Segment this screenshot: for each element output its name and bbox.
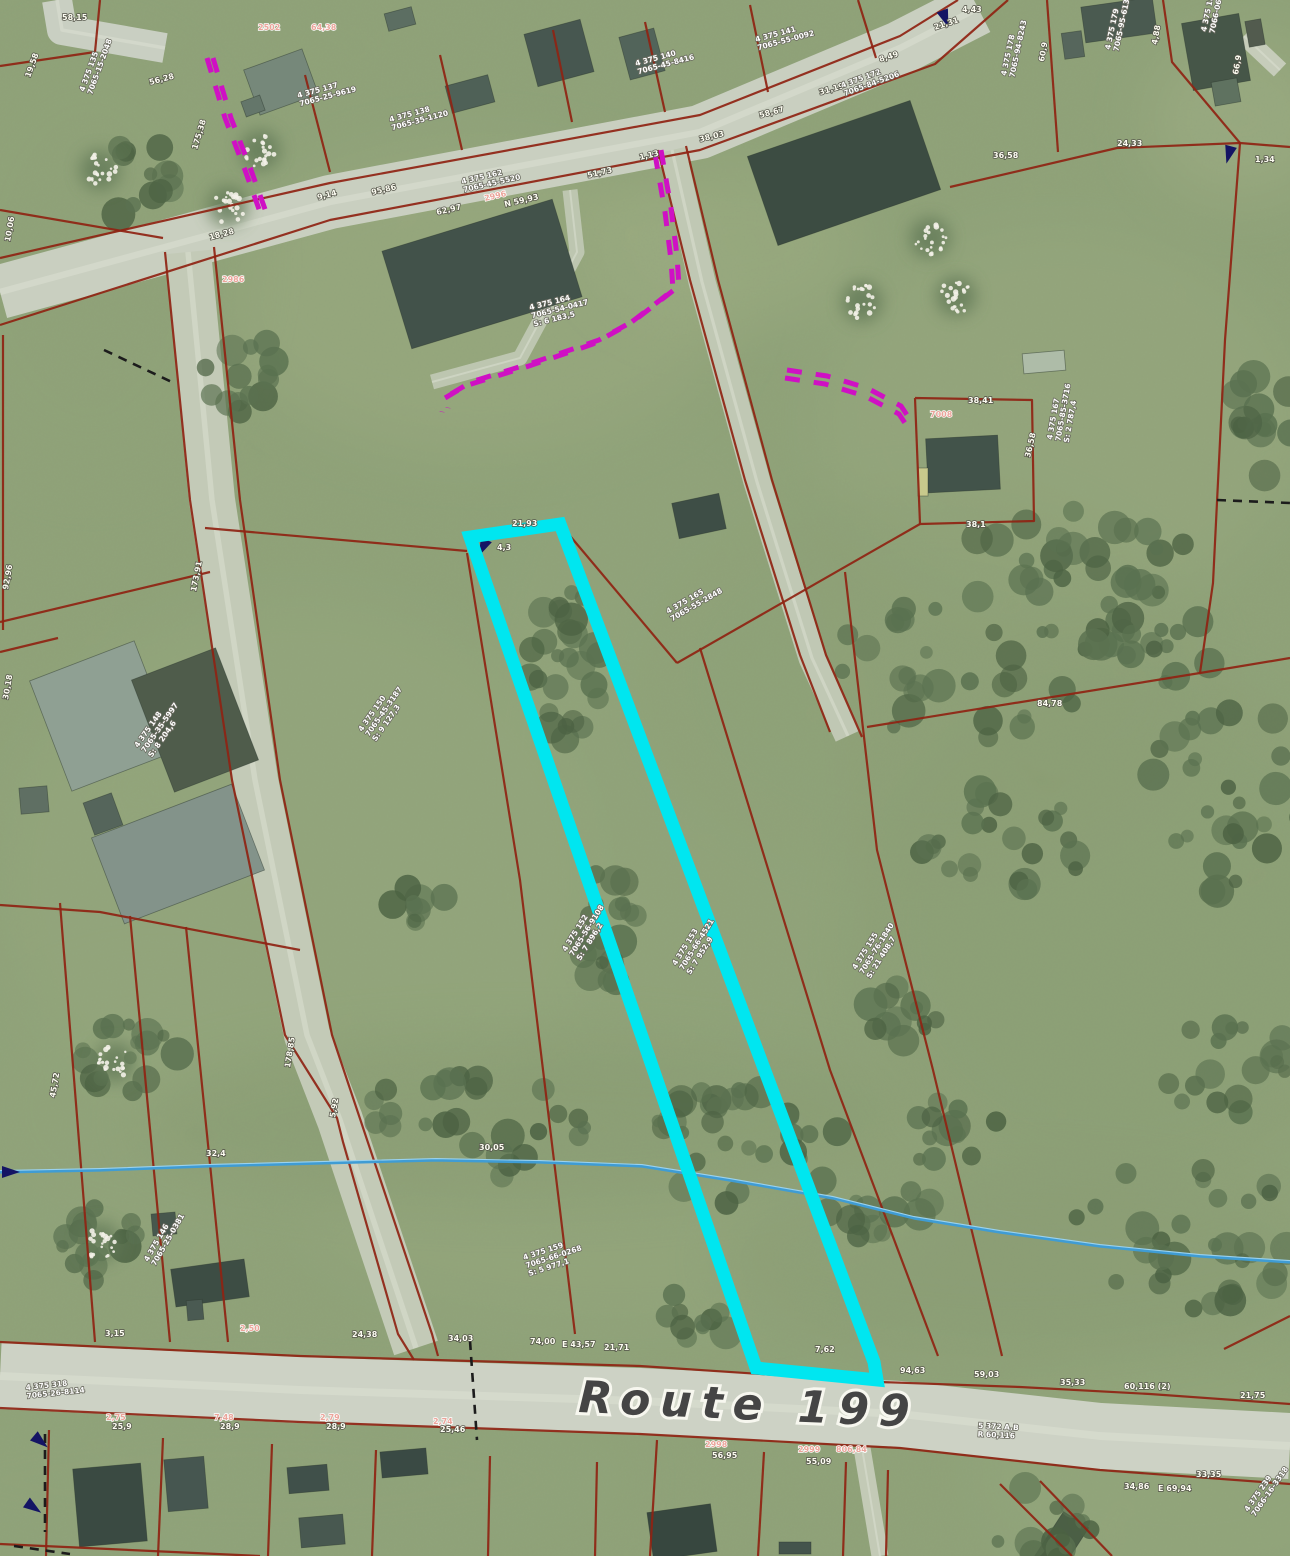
blossom-dot	[853, 285, 857, 289]
tree	[1016, 879, 1037, 900]
lot-label-cluster: 5 372 A,BR 60,116	[977, 1421, 1019, 1441]
measurement-label: 34,86	[1124, 1482, 1150, 1491]
tree	[407, 914, 421, 928]
blossom-dot	[241, 212, 245, 216]
blossom-dot	[235, 195, 238, 198]
blossom-dot	[88, 1236, 92, 1240]
blossom-dot	[97, 164, 100, 167]
blossom-dot	[260, 140, 264, 144]
blossom-dot	[939, 247, 943, 251]
blossom-dot	[923, 234, 927, 238]
tree	[443, 1108, 471, 1136]
tree	[240, 386, 259, 405]
measurement-label: 38,41	[968, 396, 994, 405]
tree	[1249, 460, 1281, 492]
blossom-dot	[917, 240, 920, 243]
tree	[1078, 629, 1110, 661]
tree	[854, 987, 888, 1021]
measurement-label: 94,63	[900, 1366, 925, 1375]
tree	[123, 1019, 135, 1031]
tree	[1010, 714, 1035, 739]
building	[1211, 78, 1241, 106]
blossom-dot	[955, 308, 959, 312]
tree	[992, 672, 1017, 697]
blossom-dot	[951, 296, 957, 302]
tree	[1214, 1285, 1246, 1317]
building	[164, 1456, 208, 1511]
map-viewport[interactable]: 58,1519,5856,2818,289,1495,8662,97N 59,9…	[0, 0, 1290, 1556]
blossom-dot	[99, 1058, 102, 1061]
tree	[1081, 1520, 1100, 1539]
measurement-label: 55,09	[806, 1457, 832, 1466]
measurement-label: 74,00	[530, 1337, 556, 1346]
blossom-dot	[252, 139, 256, 143]
measurement-label: 58,15	[62, 13, 88, 22]
tree	[532, 1078, 555, 1101]
blossom-dot	[253, 164, 256, 167]
tree	[835, 664, 850, 679]
tree	[530, 1123, 547, 1140]
tree	[988, 792, 1012, 816]
blossom-dot	[940, 290, 944, 294]
tree	[146, 134, 173, 161]
measurement-label: 4,43	[962, 5, 982, 14]
blossom-dot	[859, 287, 863, 291]
tree	[1111, 567, 1142, 598]
tree	[1056, 532, 1089, 565]
measurement-label: 806,84	[836, 1445, 867, 1454]
tree	[1182, 1021, 1200, 1039]
measurement-label: 7008	[930, 410, 953, 419]
blossom-tree	[240, 130, 280, 170]
tree	[83, 1270, 104, 1291]
tree	[1044, 624, 1059, 639]
tree	[963, 867, 978, 882]
blossom-dot	[947, 299, 952, 304]
blossom-dot	[941, 241, 945, 245]
blossom-dot	[915, 243, 918, 246]
blossom-dot	[873, 306, 876, 309]
blossom-tree	[910, 218, 950, 258]
blossom-dot	[930, 241, 934, 245]
tree	[122, 1081, 142, 1101]
measurement-label: 36,58	[993, 151, 1019, 160]
measurement-label: 60,116 (2)	[1124, 1382, 1171, 1391]
tree	[721, 1088, 744, 1111]
blossom-dot	[960, 303, 963, 306]
blossom-dot	[114, 1060, 117, 1063]
measurement-label: 56,95	[712, 1451, 738, 1460]
tree	[161, 1037, 194, 1070]
measurement-label: 2999	[798, 1445, 821, 1454]
building	[186, 1299, 204, 1320]
tree	[1172, 533, 1194, 555]
measurement-label: 32,4	[206, 1149, 226, 1158]
blossom-dot	[113, 169, 118, 174]
building	[1061, 31, 1084, 60]
tree	[1262, 1185, 1278, 1201]
tree	[600, 865, 630, 895]
tree	[375, 1079, 397, 1101]
tree	[962, 1147, 981, 1166]
measurement-label: 2986	[222, 275, 245, 284]
tree	[217, 335, 248, 366]
blossom-dot	[112, 1068, 115, 1071]
measurement-label: E 43,57	[562, 1340, 596, 1349]
tree	[1068, 861, 1083, 876]
blossom-dot	[963, 309, 966, 312]
measurement-label: 7,48	[214, 1413, 234, 1422]
blossom-dot	[121, 1072, 126, 1077]
tree	[157, 1030, 169, 1042]
tree	[1002, 827, 1026, 851]
tree	[1137, 759, 1169, 791]
blossom-dot	[214, 196, 218, 200]
blossom-dot	[219, 219, 224, 224]
tree	[253, 330, 280, 357]
tree	[1185, 1076, 1205, 1096]
tree	[1241, 1194, 1256, 1209]
blossom-dot	[110, 1246, 113, 1249]
blossom-dot	[103, 1065, 109, 1071]
building	[287, 1464, 329, 1493]
tree	[1087, 1199, 1103, 1215]
tree	[961, 672, 979, 690]
measurement-label: 24,38	[352, 1330, 378, 1339]
tree	[1170, 624, 1186, 640]
measurement-label: 2,79	[320, 1413, 340, 1422]
tree	[1221, 780, 1236, 795]
measurement-label: E 69,94	[1158, 1484, 1192, 1493]
tree	[701, 1111, 724, 1134]
tree	[670, 1315, 695, 1340]
blossom-dot	[112, 1240, 116, 1244]
blossom-dot	[101, 172, 105, 176]
blossom-dot	[119, 1070, 122, 1073]
tree	[1216, 699, 1243, 726]
measurement-label: 4,3	[497, 543, 511, 552]
blossom-dot	[857, 288, 860, 291]
blossom-dot	[262, 148, 267, 153]
measurement-label: 84,78	[1037, 699, 1063, 708]
tree	[1229, 406, 1263, 440]
tree	[587, 688, 608, 709]
tree	[847, 1225, 869, 1247]
blossom-dot	[229, 192, 234, 197]
measurement-label: 38,1	[966, 520, 986, 529]
tree	[916, 834, 942, 860]
tree	[715, 1191, 739, 1215]
building	[779, 1542, 811, 1554]
blossom-dot	[855, 316, 859, 320]
tree	[1209, 1189, 1228, 1208]
tree	[135, 1031, 160, 1056]
tree	[405, 895, 421, 911]
tree	[927, 1011, 944, 1028]
tree	[652, 1115, 664, 1127]
blossom-dot	[106, 177, 111, 182]
tree	[978, 727, 998, 747]
tree	[1146, 641, 1163, 658]
tree	[1063, 501, 1084, 522]
tree	[800, 1125, 818, 1143]
tree	[1223, 823, 1244, 844]
tree	[864, 1018, 886, 1040]
blossom-dot	[236, 217, 241, 222]
blossom-dot	[234, 212, 237, 215]
measurement-label: 28,9	[326, 1422, 346, 1431]
tree	[1069, 1209, 1085, 1225]
tree	[378, 890, 407, 919]
tree	[1212, 1014, 1238, 1040]
tree	[928, 602, 942, 616]
tree	[431, 884, 458, 911]
tree	[562, 710, 585, 733]
blossom-dot	[931, 253, 934, 256]
tree	[1221, 380, 1251, 410]
blossom-dot	[866, 293, 871, 298]
tree	[1158, 1073, 1179, 1094]
blossom-dot	[853, 312, 857, 316]
blossom-tree	[95, 1042, 135, 1082]
measurement-label: 30,05	[479, 1143, 505, 1152]
blossom-canopy	[910, 218, 950, 258]
blossom-dot	[867, 310, 873, 316]
tree	[419, 1117, 433, 1131]
blossom-dot	[920, 247, 923, 250]
tree	[624, 905, 646, 927]
tree	[519, 637, 544, 662]
measurement-label: 7,62	[815, 1345, 835, 1354]
tree	[755, 1145, 773, 1163]
tree	[1174, 1094, 1190, 1110]
tree	[1229, 875, 1243, 889]
measurement-label: 59,03	[974, 1370, 999, 1379]
tree	[1011, 510, 1041, 540]
tree	[559, 648, 579, 668]
building	[380, 1448, 428, 1478]
tree	[463, 1066, 493, 1096]
measurement-label: 21,75	[1240, 1391, 1266, 1400]
blossom-dot	[934, 224, 940, 230]
blossom-dot	[93, 181, 97, 185]
tree	[1252, 833, 1282, 863]
tree	[1185, 711, 1200, 726]
building	[926, 435, 1001, 493]
measurement-label: 21,93	[512, 519, 537, 528]
tree	[1201, 805, 1214, 818]
tree	[1258, 703, 1288, 733]
blossom-dot	[101, 1061, 104, 1064]
tree	[1019, 553, 1035, 569]
tree	[901, 1181, 922, 1202]
tree	[125, 197, 141, 213]
blossom-dot	[855, 303, 860, 308]
blossom-dot	[953, 292, 958, 297]
blossom-dot	[962, 290, 966, 294]
blossom-dot	[945, 293, 950, 298]
blossom-dot	[98, 1052, 102, 1056]
tree	[891, 608, 914, 631]
blossom-dot	[272, 152, 277, 157]
blossom-dot	[98, 178, 101, 181]
tree	[1208, 1238, 1222, 1252]
tree	[992, 1535, 1005, 1548]
blossom-dot	[90, 177, 93, 180]
blossom-dot	[222, 198, 226, 202]
blossom-dot	[110, 168, 112, 170]
measurement-label: 28,9	[220, 1422, 240, 1431]
blossom-dot	[268, 145, 272, 149]
blossom-dot	[258, 157, 262, 161]
blossom-dot	[97, 1062, 100, 1065]
blossom-dot	[862, 303, 865, 306]
blossom-dot	[105, 1061, 110, 1066]
tree	[1256, 1268, 1287, 1299]
tree	[1181, 830, 1194, 843]
measurement-label: 2,75	[106, 1413, 126, 1422]
blossom-dot	[262, 146, 265, 149]
blossom-dot	[102, 1232, 104, 1234]
blossom-dot	[956, 281, 961, 286]
tree	[1271, 746, 1290, 765]
tree	[854, 635, 880, 661]
tree	[920, 646, 933, 659]
blossom-dot	[870, 295, 874, 299]
tree	[100, 1014, 124, 1038]
tree	[420, 1075, 445, 1100]
blossom-tree	[80, 150, 120, 190]
measurement-label: 34,03	[448, 1334, 473, 1343]
tree	[837, 624, 858, 645]
tree	[718, 1136, 734, 1152]
tree	[1182, 759, 1200, 777]
blossom-dot	[115, 1056, 118, 1059]
blossom-dot	[110, 1235, 113, 1238]
measurement-label: 64,38	[311, 23, 337, 32]
tree	[694, 1314, 712, 1332]
tree	[1122, 625, 1141, 644]
tree	[1150, 542, 1163, 555]
blossom-dot	[89, 1228, 94, 1233]
tree	[543, 674, 569, 700]
tree	[1159, 721, 1189, 751]
tree	[379, 1115, 401, 1137]
blossom-dot	[955, 282, 957, 284]
tree	[149, 179, 173, 203]
blossom-dot	[93, 156, 97, 160]
blossom-dot	[105, 158, 108, 161]
measurement-label: 24,33	[1117, 139, 1142, 148]
tree	[1063, 694, 1081, 712]
measurement-label: 1,34	[1255, 155, 1275, 164]
tree	[549, 597, 570, 618]
blossom-tree	[936, 276, 976, 316]
blossom-dot	[942, 283, 947, 288]
measurement-label: 25,46	[440, 1425, 466, 1434]
tree	[985, 624, 1002, 641]
blossom-dot	[864, 284, 867, 287]
measurement-label: 21,71	[604, 1343, 630, 1352]
blossom-dot	[940, 228, 944, 232]
blossom-tree	[842, 282, 882, 322]
blossom-dot	[120, 1066, 125, 1071]
tree	[1233, 797, 1246, 810]
tree	[941, 861, 958, 878]
blossom-dot	[107, 171, 113, 177]
tree	[1108, 1274, 1124, 1290]
blossom-dot	[100, 1246, 103, 1249]
tree	[1117, 646, 1136, 665]
tree	[961, 812, 984, 835]
blossom-dot	[112, 1250, 115, 1253]
blossom-dot	[263, 134, 266, 137]
measurement-label: 33,35	[1196, 1470, 1222, 1479]
blossom-dot	[106, 1254, 109, 1257]
measurement-label: 3,15	[105, 1329, 125, 1338]
blossom-dot	[966, 285, 969, 288]
aerial-cadastral-map[interactable]: 58,1519,5856,2818,289,1495,8662,97N 59,9…	[0, 0, 1290, 1556]
measurement-label: 2502	[258, 23, 280, 32]
tree	[1256, 816, 1272, 832]
tree	[986, 1111, 1006, 1131]
blossom-dot	[114, 165, 119, 170]
tree	[1171, 1215, 1190, 1234]
blossom-dot	[234, 205, 239, 210]
blossom-dot	[120, 1062, 124, 1066]
building	[1022, 350, 1066, 374]
tree	[1038, 810, 1054, 826]
tree	[578, 1121, 591, 1134]
measurement-label: 25,9	[112, 1422, 132, 1431]
building	[19, 786, 49, 814]
blossom-dot	[949, 286, 953, 290]
blossom-dot	[90, 157, 93, 160]
tree	[1185, 1300, 1203, 1318]
blossom-dot	[263, 158, 266, 161]
measurement-label: 2,74	[433, 1417, 453, 1426]
measurement-label: 2,50	[240, 1324, 260, 1333]
tree	[1022, 843, 1043, 864]
tree	[922, 1147, 946, 1171]
blossom-dot	[225, 196, 227, 198]
tree	[663, 1284, 685, 1306]
tree	[549, 1105, 567, 1123]
tree	[823, 1117, 852, 1146]
tree	[596, 956, 609, 969]
tree	[226, 364, 251, 389]
blossom-dot	[124, 1051, 126, 1053]
blossom-dot	[264, 161, 268, 165]
tree	[741, 1140, 756, 1155]
blossom-dot	[92, 1253, 96, 1257]
blossom-dot	[266, 151, 271, 156]
measurement-label: 35,33	[1060, 1378, 1085, 1387]
blossom-dot	[930, 246, 933, 249]
tree	[1224, 1085, 1253, 1114]
tree	[1054, 802, 1067, 815]
blossom-dot	[925, 248, 929, 252]
tree	[710, 1303, 730, 1323]
tree	[126, 1225, 145, 1244]
tree	[1025, 578, 1053, 606]
tree	[962, 581, 994, 613]
tree	[75, 1042, 91, 1058]
tree	[907, 674, 934, 701]
blossom-dot	[101, 1242, 104, 1245]
tree	[1192, 1159, 1215, 1182]
blossom-dot	[942, 235, 945, 238]
